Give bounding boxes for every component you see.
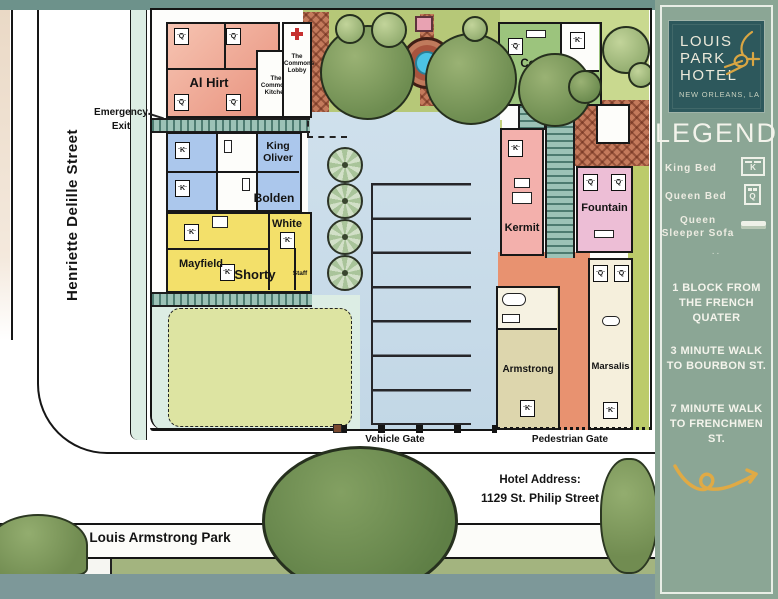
building-commons-lobby: The Commons Lobby [282, 22, 312, 118]
boardwalk-yellow [152, 292, 312, 307]
pedestrian-gate-line [497, 427, 652, 430]
king-bed-icon: K [175, 180, 190, 197]
queen-bed-icon: Q [226, 94, 241, 111]
planter [327, 147, 363, 183]
queen-bed-icon: Q [614, 265, 629, 282]
tree [425, 33, 517, 125]
bush [0, 514, 88, 576]
street-left-shoulder [0, 10, 10, 340]
legend-item-sleeper-sofa: Queen Sleeper Sofa [657, 214, 739, 240]
building-king-oliver-bolden: K K King Oliver Bolden [166, 132, 302, 212]
building-fountain: Q Q Fountain [576, 166, 633, 253]
king-letter: K [750, 163, 756, 172]
queen-bed-icon: Q [174, 28, 189, 45]
queen-bed-legend-icon: Q [744, 184, 761, 205]
king-bed-icon: K [508, 140, 523, 157]
note-frenchmen-st: 7 MINUTE WALK TO FRENCHMEN ST. [664, 402, 769, 447]
planter [327, 219, 363, 255]
building-label-staff: Staff [287, 270, 313, 277]
building-label-marsalis: Marsalis [590, 362, 631, 372]
boardwalk-al-hirt [152, 118, 310, 133]
planter [327, 183, 363, 219]
property: Q Q Q Q Al Hirt The Commons Kitchen The … [150, 8, 652, 430]
emergency-exit-label: Emergency Exit [84, 106, 158, 134]
king-bed-icon: K [175, 142, 190, 159]
planter [327, 255, 363, 291]
lawn [168, 308, 352, 427]
hotel-logo: LOUIS PARK HOTEL NEW ORLEANS, LA [668, 20, 765, 113]
boardwalk-kermit [545, 112, 575, 258]
building-label-shorty: Shorty [226, 268, 284, 282]
legend-item-queen-bed: Queen Bed [665, 191, 727, 202]
pergola [415, 16, 433, 32]
vehicle-gate-posts [340, 425, 497, 433]
street-curb-line [11, 10, 13, 340]
sleeper-sofa-legend-icon [741, 221, 766, 229]
queen-bed-icon: Q [226, 28, 241, 45]
gate-post-brown [333, 424, 342, 433]
building-label-al-hirt: Al Hirt [170, 76, 248, 90]
first-aid-cross-icon [291, 28, 303, 40]
building-kermit: K Kermit [500, 128, 544, 256]
building-marsalis: Q Q K Marsalis [588, 258, 633, 430]
king-bed-icon: K [603, 402, 618, 419]
vehicle-gate-label: Vehicle Gate [340, 434, 450, 445]
sidewalk-strip [130, 10, 147, 440]
parking-stalls [371, 183, 471, 425]
tree [628, 62, 652, 88]
bush [600, 458, 658, 574]
building-label-armstrong: Armstrong [498, 364, 558, 375]
building-label-commons-lobby: The Commons Lobby [284, 54, 310, 74]
street-henriette-delille: Henriette Delille Street [65, 95, 85, 335]
queen-bed-icon: Q [611, 174, 626, 191]
king-bed-icon: K [280, 232, 295, 249]
courtyard-orange-v [556, 252, 590, 430]
queen-bed-icon: Q [593, 265, 608, 282]
legend-panel: LOUIS PARK HOTEL NEW ORLEANS, LA LEGEND:… [655, 0, 778, 599]
logo-subtitle: NEW ORLEANS, LA [679, 90, 760, 99]
tree [568, 70, 602, 104]
queen-letter: Q [749, 192, 755, 201]
building-mayfield-shorty-white: K K K White Mayfield Shorty Staff [166, 212, 312, 293]
building-label-kermit: Kermit [502, 222, 542, 234]
legend-item-king-bed: King Bed [665, 163, 717, 174]
building-label-white: White [264, 218, 310, 230]
building-label-king-oliver: King Oliver [256, 141, 300, 164]
king-bed-icon: K [520, 400, 535, 417]
pedestrian-gate-label: Pedestrian Gate [510, 434, 630, 445]
building-label-mayfield: Mayfield [170, 258, 232, 270]
king-bed-legend-icon: K [741, 157, 765, 176]
queen-bed-icon: Q [508, 38, 523, 55]
divider-dots: .. [655, 246, 778, 257]
building-label-fountain: Fountain [578, 202, 631, 214]
queen-bed-icon: Q [583, 174, 598, 191]
gazebo [596, 104, 630, 144]
trumpet-icon [716, 27, 762, 83]
tree [335, 14, 365, 44]
building-label-bolden: Bolden [248, 192, 300, 205]
king-bed-icon: K [184, 224, 199, 241]
bottom-band [0, 574, 655, 599]
tree [371, 12, 407, 48]
building-armstrong: K Armstrong [496, 286, 560, 430]
note-bourbon-st: 3 MINUTE WALK TO BOURBON ST. [664, 344, 769, 374]
legend-title: LEGEND: [655, 118, 778, 149]
queen-bed-icon: Q [174, 94, 189, 111]
property-bottom-edge [150, 428, 340, 431]
arrow-icon [669, 450, 765, 512]
note-french-quarter: 1 BLOCK FROM THE FRENCH QUATER [664, 281, 769, 326]
site-map: Henriette Delille Street [0, 0, 778, 599]
tree [462, 16, 488, 42]
king-bed-icon: K [570, 32, 585, 49]
